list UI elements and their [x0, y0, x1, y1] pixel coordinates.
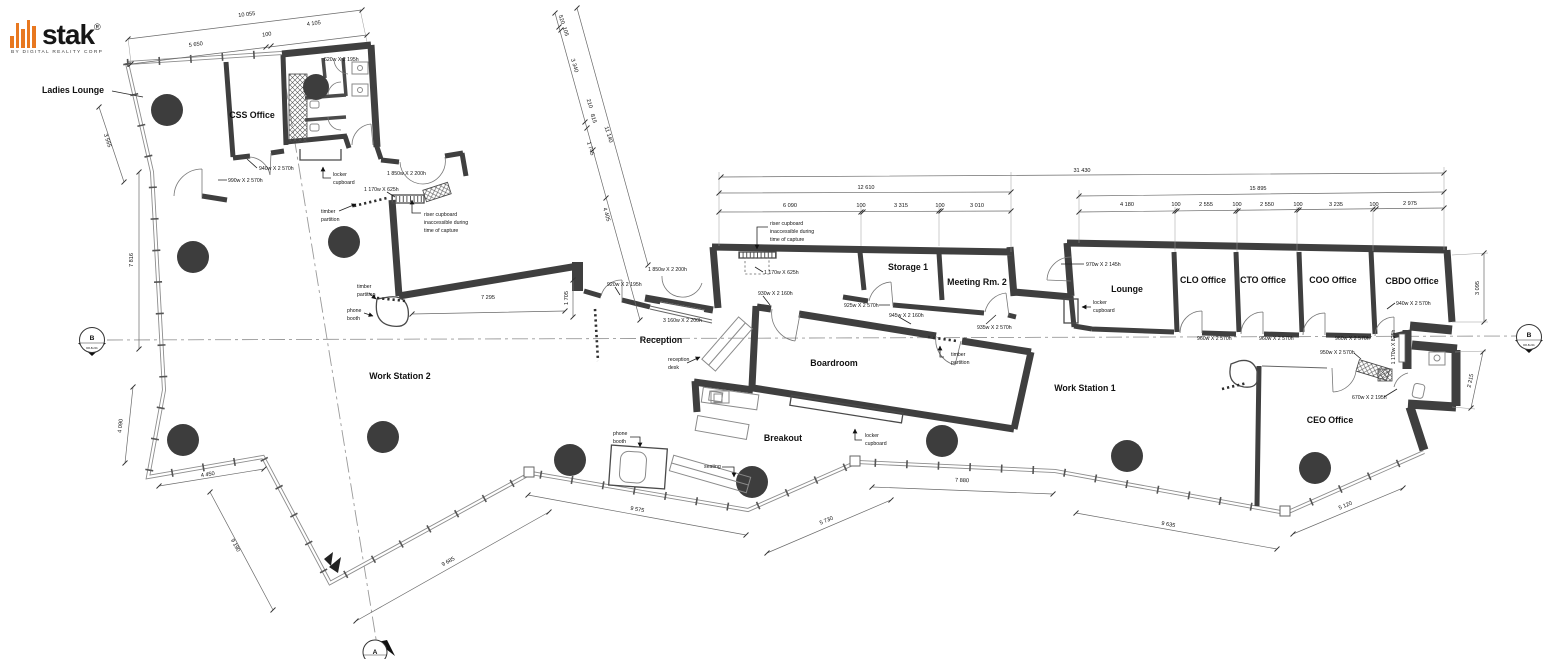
wall-post — [1280, 506, 1290, 516]
riser-cupboard-label-left: riser cupboardinaccessible duringtime of… — [424, 212, 468, 234]
room-work-station-2: Work Station 2 — [369, 371, 431, 381]
room-ladies-lounge: Ladies Lounge — [42, 85, 104, 95]
dim-100: 100 — [262, 31, 272, 38]
phone-booth-breakout — [609, 445, 668, 489]
sink-bowl — [358, 66, 363, 71]
locker-line1: locker — [865, 433, 879, 439]
sink — [1429, 352, 1445, 365]
dim-100: 100 — [1232, 202, 1241, 208]
room-boardroom: Boardroom — [810, 358, 858, 368]
door-1170-625-center: 1 170w X 625h — [764, 270, 799, 276]
riser-line1: riser cupboard — [770, 221, 803, 227]
door-3160: 3 160w X 2 200h — [663, 318, 702, 324]
wall-pier — [572, 262, 583, 291]
dim-3010: 3 010 — [970, 203, 984, 209]
room-work-station-1: Work Station 1 — [1054, 383, 1116, 393]
dim-7816: 7 816 — [129, 253, 135, 267]
door-970: 970w X 2 145h — [1086, 262, 1121, 268]
door-1170-825: 1 170w X 825h — [1391, 330, 1397, 365]
dim-4090: 4 090 — [117, 419, 124, 434]
vanity — [352, 84, 368, 96]
dim-100: 100 — [1171, 202, 1180, 208]
reception-desk — [702, 317, 752, 371]
dim-100: 100 — [935, 203, 944, 209]
door-960-clo: 960w X 2 570h — [1197, 336, 1232, 342]
phone-line1: phone — [613, 431, 628, 437]
timber-partition-label-ws2: timberpartition — [357, 284, 376, 298]
dim-12610: 12 610 — [857, 185, 874, 191]
phone-line1: phone — [347, 308, 362, 314]
marker-b-code: DR-B-201 — [86, 346, 98, 350]
phone-booth-label-ws2: phonebooth — [347, 308, 362, 322]
phone-booth-label-breakout: phonebooth — [613, 431, 628, 445]
sink-bowl — [358, 88, 363, 93]
riser-cupboard-label-center: riser cupboardinaccessible duringtime of… — [770, 221, 814, 243]
seating-label: seating — [704, 464, 721, 470]
dim-15895: 15 895 — [1249, 186, 1266, 192]
dim-4105: 4 105 — [307, 20, 322, 28]
dim-3565: 3 565 — [102, 133, 112, 148]
dim-1705: 1 705 — [564, 291, 570, 305]
wall-post — [524, 467, 534, 477]
sink-bowl — [1434, 355, 1440, 361]
rdesk-line2: desk — [668, 365, 679, 371]
door-960-cto: 960w X 2 570h — [1259, 336, 1294, 342]
fixtures — [300, 62, 1445, 573]
locker-line2: cupboard — [333, 180, 355, 186]
riser-cupboard-left — [392, 195, 424, 203]
door-940-cbdo: 940w X 2 570h — [1396, 301, 1431, 307]
dim-3340: 3 340 — [569, 58, 579, 73]
room-css-office: CSS Office — [229, 110, 275, 120]
dim-3095: 3 095 — [1475, 281, 1481, 295]
room-cto-office: CTO Office — [1240, 275, 1286, 285]
dim-2555: 2 555 — [1199, 202, 1213, 208]
dim-9685: 9 685 — [441, 556, 456, 568]
door-620: 620w X 2 195h — [324, 57, 359, 63]
vanity — [352, 62, 368, 74]
timber-line1: timber — [951, 352, 966, 358]
window-walls — [127, 53, 1424, 583]
room-coo-office: COO Office — [1309, 275, 1357, 285]
riser-line2: inaccessible during — [424, 220, 468, 226]
room-clo-office: CLO Office — [1180, 275, 1226, 285]
section-marker-b-left: B DR-B-201 — [78, 328, 106, 357]
timber-line1: timber — [321, 209, 336, 215]
dim-4180: 4 180 — [1120, 202, 1134, 208]
centerlines — [107, 57, 1516, 645]
door-930: 930w X 2 160h — [758, 291, 793, 297]
corridor-hatch — [1378, 369, 1392, 381]
dim-11140: 11 140 — [603, 126, 614, 144]
wc-pan — [310, 124, 319, 131]
timber-line2: partition — [321, 217, 340, 223]
riser-line2: inaccessible during — [770, 229, 814, 235]
door-950: 950w X 2 570h — [1320, 350, 1355, 356]
room-meeting-rm-2: Meeting Rm. 2 — [947, 277, 1007, 287]
locker-cupboard-label: lockercupboard — [333, 172, 355, 186]
dim-100: 100 — [856, 203, 865, 209]
locker-line2: cupboard — [865, 441, 887, 447]
rdesk-line1: reception — [668, 357, 689, 363]
dim-2550: 2 550 — [1260, 202, 1274, 208]
timber-line2: partition — [951, 360, 970, 366]
marker-b-code: DR-B-201 — [1523, 343, 1535, 347]
timber-partition-label: timberpartition — [321, 209, 340, 223]
dim-5650: 5 650 — [189, 41, 204, 49]
dim-9190: 9 190 — [229, 538, 241, 553]
marker-a-label: A — [373, 649, 378, 656]
wall-post — [850, 456, 860, 466]
locker-line1: locker — [333, 172, 347, 178]
door-925: 925w X 2 570h — [844, 303, 879, 309]
marker-b-label: B — [1527, 332, 1532, 339]
dim-31430: 31 430 — [1073, 168, 1090, 174]
locker-cupboard-label-boardroom: lockercupboard — [865, 433, 887, 447]
dim-6090: 6 090 — [783, 203, 797, 209]
phone-line2: booth — [347, 316, 360, 322]
door-960-coo: 960w X 2 570h — [1335, 336, 1370, 342]
dim-2975: 2 975 — [1403, 201, 1417, 207]
door-1170-625-left: 1 170w X 625h — [364, 187, 399, 193]
reception-desk-label: receptiondesk — [668, 357, 689, 371]
dim-815: 815 — [589, 113, 597, 124]
dim-1745: 1 745 — [585, 141, 595, 156]
dim-3235: 3 235 — [1329, 202, 1343, 208]
door-940-css: 940w X 2 570h — [259, 166, 294, 172]
dim-9575: 9 575 — [630, 506, 645, 514]
dim-105: 105 — [561, 26, 569, 37]
wc-pan — [310, 101, 319, 108]
riser-line3: time of capture — [770, 237, 804, 243]
floor-plan-canvas: stak® BY DIGITAL REALITY CORP — [0, 0, 1548, 659]
door-size-labels: 620w X 2 195h 940w X 2 570h 990w X 2 570… — [228, 57, 1431, 401]
breakout-table — [695, 416, 749, 440]
door-1850-center: 1 850w X 2 200h — [648, 267, 687, 273]
door-935: 935w X 2 570h — [977, 325, 1012, 331]
riser-line1: riser cupboard — [424, 212, 457, 218]
dim-100: 100 — [1369, 202, 1378, 208]
locker-cupboard-css — [300, 149, 341, 160]
section-marker-a: A — [363, 640, 395, 659]
marker-b-label: B — [90, 335, 95, 342]
dim-7880: 7 880 — [955, 478, 969, 484]
room-ceo-office: CEO Office — [1307, 415, 1354, 425]
room-breakout: Breakout — [764, 433, 802, 443]
timber-line1: timber — [357, 284, 372, 290]
wc-pan — [1412, 383, 1426, 399]
room-cbdo-office: CBDO Office — [1385, 276, 1438, 286]
door-990: 990w X 2 570h — [228, 178, 263, 184]
dim-210: 210 — [585, 98, 593, 109]
dim-100: 100 — [1293, 202, 1302, 208]
room-lounge: Lounge — [1111, 284, 1143, 294]
door-670: 670w X 2 195h — [1352, 395, 1387, 401]
timber-line2: partition — [357, 292, 376, 298]
section-marker-b-right: B DR-B-201 — [1515, 325, 1543, 354]
door-920: 920w X 2 195h — [607, 282, 642, 288]
locker-line2: cupboard — [1093, 308, 1115, 314]
door-945: 945w X 2 160h — [889, 313, 924, 319]
dim-10055: 10 055 — [238, 11, 256, 19]
hatch-door-leaf — [1399, 334, 1405, 362]
dim-2215: 2 215 — [1467, 373, 1476, 388]
door-1850-left: 1 850w X 2 200h — [387, 171, 426, 177]
locker-cupboard-label-lounge: lockercupboard — [1093, 300, 1115, 314]
riser-hatch — [423, 182, 451, 201]
dim-3315: 3 315 — [894, 203, 908, 209]
dim-7295: 7 295 — [481, 295, 495, 301]
room-reception: Reception — [640, 335, 683, 345]
dim-9635: 9 635 — [1161, 521, 1176, 529]
floor-plan-drawing: B DR-B-201 B DR-B-201 A Ladies Lounge CS… — [0, 0, 1548, 659]
dim-4450: 4 450 — [200, 471, 215, 479]
riser-line3: time of capture — [424, 228, 458, 234]
phone-line2: booth — [613, 439, 626, 445]
timber-partition-label-boardroom: timberpartition — [951, 352, 970, 366]
locker-line1: locker — [1093, 300, 1107, 306]
room-storage-1: Storage 1 — [888, 262, 928, 272]
